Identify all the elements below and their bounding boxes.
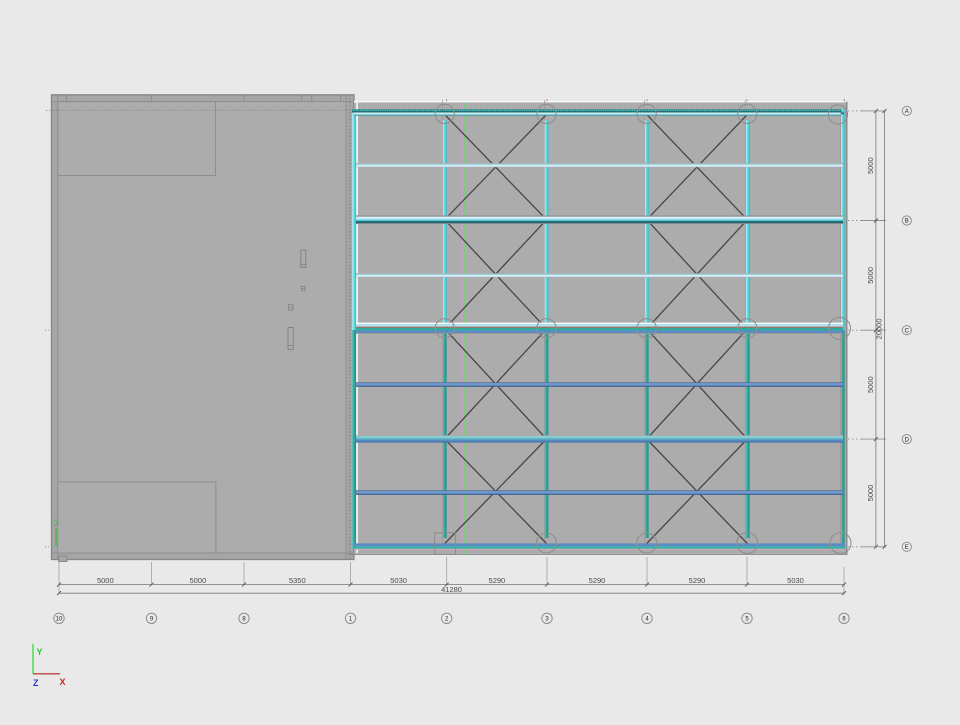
svg-text:5030: 5030	[390, 576, 407, 585]
svg-text:5350: 5350	[289, 576, 306, 585]
svg-text:20000: 20000	[875, 318, 884, 339]
svg-text:5000: 5000	[866, 376, 875, 393]
svg-text:C: C	[905, 328, 910, 334]
svg-text:5290: 5290	[589, 576, 606, 585]
svg-text:D: D	[905, 437, 910, 443]
svg-text:A: A	[905, 109, 909, 115]
svg-text:5030: 5030	[787, 576, 804, 585]
svg-text:5000: 5000	[97, 576, 114, 585]
svg-text:Y: Y	[37, 647, 43, 657]
svg-text:10: 10	[56, 617, 63, 623]
svg-text:B: B	[905, 219, 909, 225]
svg-text:5000: 5000	[189, 576, 206, 585]
svg-text:5000: 5000	[866, 157, 875, 174]
svg-text:Z: Z	[33, 678, 39, 688]
svg-text:41280: 41280	[441, 585, 462, 594]
svg-text:E: E	[905, 545, 909, 551]
svg-text:5290: 5290	[489, 576, 506, 585]
svg-text:5290: 5290	[689, 576, 706, 585]
svg-text:X: X	[60, 677, 66, 687]
svg-text:5000: 5000	[866, 267, 875, 284]
svg-text:5000: 5000	[866, 485, 875, 502]
